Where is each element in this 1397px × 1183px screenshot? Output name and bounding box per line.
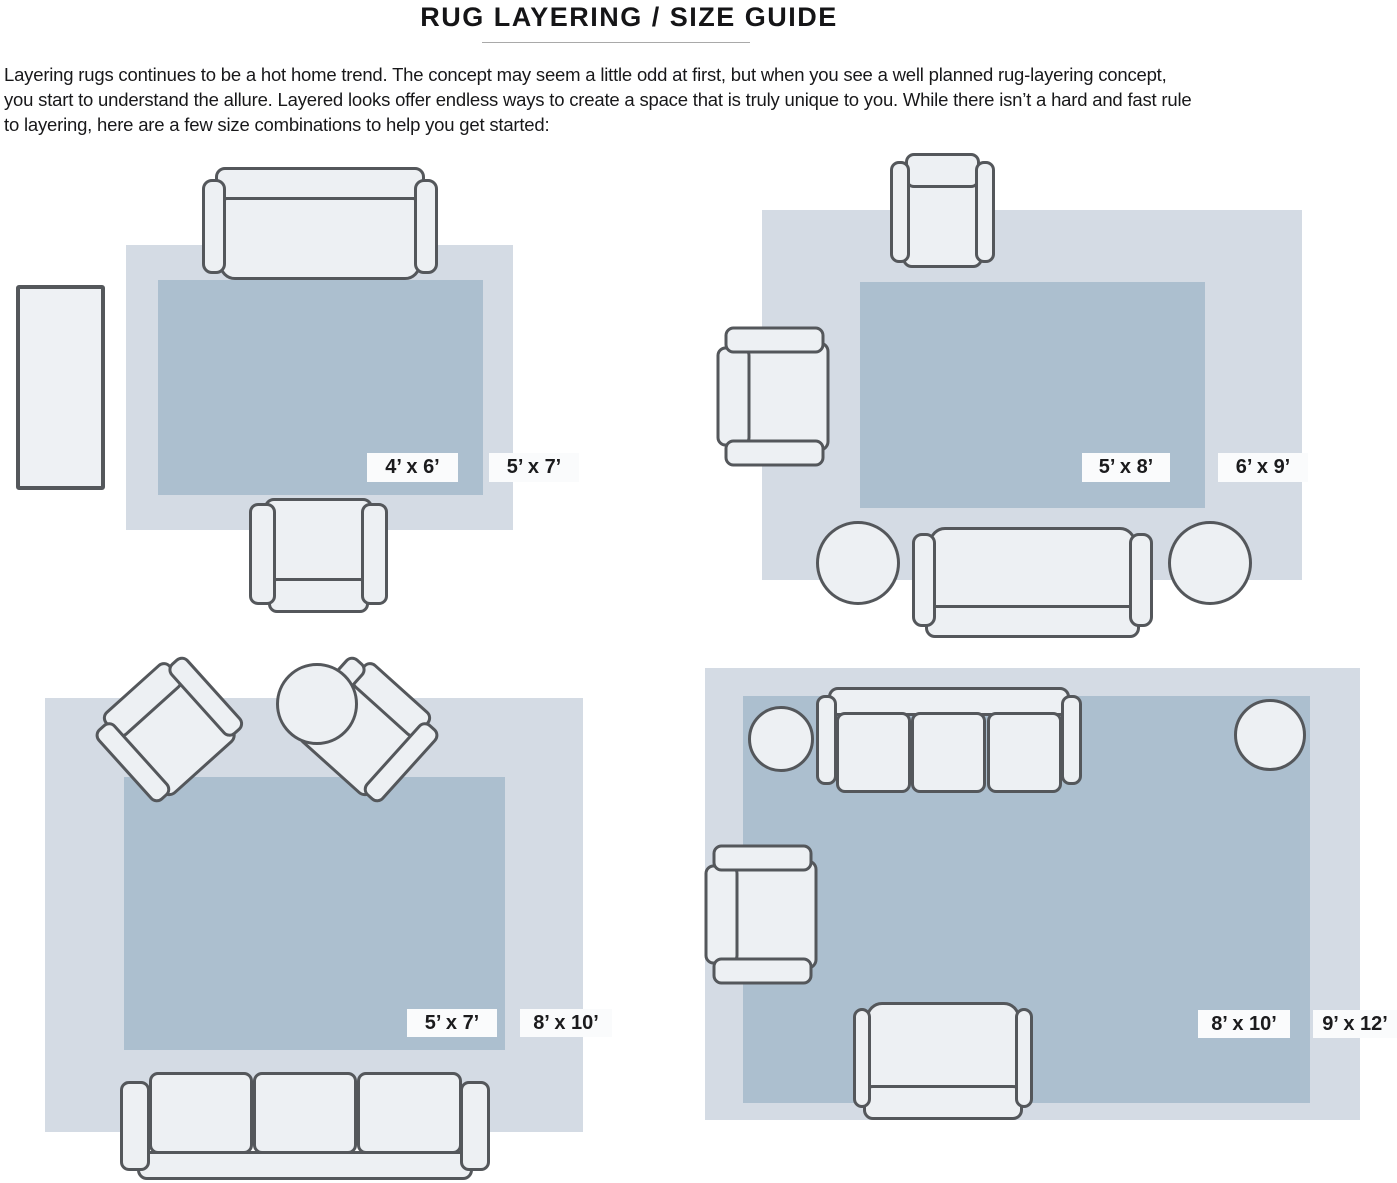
outer-rug-size-label: 5’ x 7’ <box>489 453 579 482</box>
armchair-back <box>905 153 981 188</box>
round-side-table <box>748 706 814 772</box>
inner-rug-5x8 <box>860 282 1205 508</box>
intro-line-1: Layering rugs continues to be a hot home… <box>4 62 1191 87</box>
inner-rug-4x6 <box>158 280 483 495</box>
sofa-arm-right <box>1061 695 1082 784</box>
sofa-seat <box>929 527 1136 608</box>
round-side-table <box>1234 699 1306 771</box>
armchair-arm-right <box>165 653 247 740</box>
angled-armchair-top-view <box>285 647 448 809</box>
sofa-back <box>925 605 1140 638</box>
diagram-5x8-on-6x9: 5’ x 8’ 6’ x 9’ <box>0 0 1397 1183</box>
sofa-seat <box>866 1002 1021 1088</box>
diagram-8x10-on-9x12: 8’ x 10’ 9’ x 12’ <box>0 0 1397 1183</box>
armchair-top-view <box>890 153 995 268</box>
armchair-arm-right <box>724 327 825 354</box>
armchair-arm-left <box>92 718 174 805</box>
three-seat-sofa-top-view <box>120 1072 490 1180</box>
outer-rug-5x7 <box>126 245 513 530</box>
sofa-back <box>828 687 1070 716</box>
sofa-arm-right <box>853 1008 871 1108</box>
sofa-cushion <box>836 712 911 793</box>
inner-rug-8x10 <box>743 696 1310 1103</box>
outer-rug-size-label: 9’ x 12’ <box>1313 1010 1397 1038</box>
armchair-back <box>348 658 435 741</box>
diagram-4x6-on-5x7: 4’ x 6’ 5’ x 7’ <box>0 0 1397 1183</box>
intro-paragraph: Layering rugs continues to be a hot home… <box>4 62 1191 137</box>
inner-rug-size-label: 5’ x 7’ <box>407 1009 497 1037</box>
sofa-arm-left <box>460 1081 490 1172</box>
sofa-back <box>137 1151 474 1180</box>
diagram-5x7-on-8x10: 5’ x 7’ 8’ x 10’ <box>0 0 1397 1183</box>
console-table <box>16 285 105 490</box>
armchair-back <box>99 658 186 741</box>
armchair-arm-right <box>975 161 995 263</box>
rug-size-guide: RUG LAYERING / SIZE GUIDE Layering rugs … <box>0 0 1397 1183</box>
armchair-arm-left <box>724 439 825 466</box>
sofa-arm-left <box>1015 1008 1033 1108</box>
armchair-top-view <box>717 327 830 467</box>
armchair-seat <box>723 860 818 969</box>
sofa-seat <box>219 197 422 280</box>
inner-rug-size-label: 5’ x 8’ <box>1082 453 1170 482</box>
armchair-arm-left <box>890 161 910 263</box>
armchair-arm-right <box>712 845 813 872</box>
angled-armchair-top-view <box>87 647 250 809</box>
sofa-arm-right <box>120 1081 150 1172</box>
round-side-table <box>1168 521 1252 605</box>
intro-line-2: you start to understand the allure. Laye… <box>4 87 1191 112</box>
armchair-arm-left <box>361 503 388 605</box>
round-side-table <box>276 663 358 745</box>
armchair-seat <box>902 171 984 268</box>
intro-line-3: to layering, here are a few size combina… <box>4 112 1191 137</box>
sofa-cushion <box>253 1072 357 1154</box>
page-title: RUG LAYERING / SIZE GUIDE <box>0 2 1258 33</box>
three-seat-sofa-top-view <box>816 687 1082 793</box>
armchair-back <box>705 864 739 965</box>
sofa-back <box>215 167 425 200</box>
sofa-arm-left <box>202 179 226 274</box>
sofa-cushion <box>987 712 1062 793</box>
outer-rug-8x10 <box>45 698 583 1132</box>
armchair-seat <box>295 669 426 800</box>
armchair-arm-left <box>287 653 369 740</box>
outer-rug-size-label: 6’ x 9’ <box>1218 453 1308 482</box>
outer-rug-size-label: 8’ x 10’ <box>520 1009 612 1037</box>
outer-rug-6x9 <box>762 210 1302 580</box>
sofa-arm-left <box>1129 533 1153 627</box>
armchair-back <box>268 579 368 614</box>
round-side-table <box>816 521 900 605</box>
sofa-cushion <box>149 1072 253 1154</box>
sofa-arm-right <box>414 179 438 274</box>
armchair-top-view <box>249 498 388 613</box>
outer-rug-9x12 <box>705 668 1360 1120</box>
sofa-arm-left <box>816 695 837 784</box>
sofa-arm-right <box>912 533 936 627</box>
loveseat-top-view <box>853 1000 1033 1120</box>
armchair-seat <box>264 498 372 595</box>
inner-rug-size-label: 8’ x 10’ <box>1198 1010 1290 1038</box>
armchair-top-view <box>705 845 818 985</box>
sofa-back <box>863 1085 1023 1120</box>
inner-rug-size-label: 4’ x 6’ <box>367 453 458 482</box>
armchair-back <box>717 346 751 447</box>
sofa-top-view <box>202 167 438 282</box>
sofa-top-view <box>912 525 1153 638</box>
sofa-cushion <box>357 1072 461 1154</box>
armchair-arm-left <box>712 957 813 984</box>
armchair-seat <box>735 342 830 451</box>
armchair-seat <box>108 669 239 800</box>
sofa-cushion <box>911 712 986 793</box>
armchair-arm-right <box>249 503 276 605</box>
title-divider <box>482 42 750 43</box>
armchair-arm-right <box>360 718 442 805</box>
inner-rug-5x7 <box>124 777 505 1050</box>
